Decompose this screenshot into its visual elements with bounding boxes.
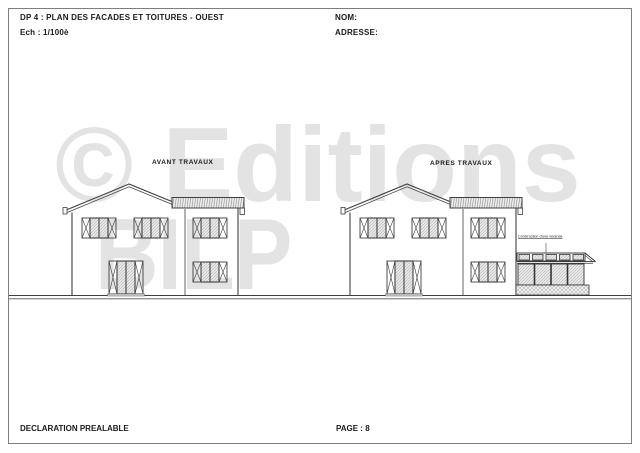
veranda-annotation: Construction d'une veranda — [518, 235, 562, 239]
facades-drawing — [0, 0, 640, 453]
before-works-caption: AVANT TRAVAUX — [152, 159, 213, 166]
document-title: DP 4 : PLAN DES FACADES ET TOITURES - OU… — [20, 13, 224, 22]
house-after-works — [341, 184, 523, 296]
ground-lines — [9, 296, 631, 299]
page-number: PAGE : 8 — [336, 424, 370, 433]
name-field-label: NOM: — [335, 13, 357, 22]
veranda — [516, 243, 596, 295]
after-works-caption: APRES TRAVAUX — [430, 160, 492, 167]
plan-page: © Editions BILP — [0, 0, 640, 453]
document-type: DECLARATION PREALABLE — [20, 424, 129, 433]
address-field-label: ADRESSE: — [335, 28, 378, 37]
scale-note: Ech : 1/100è — [20, 28, 69, 37]
house-before-works — [63, 184, 245, 296]
